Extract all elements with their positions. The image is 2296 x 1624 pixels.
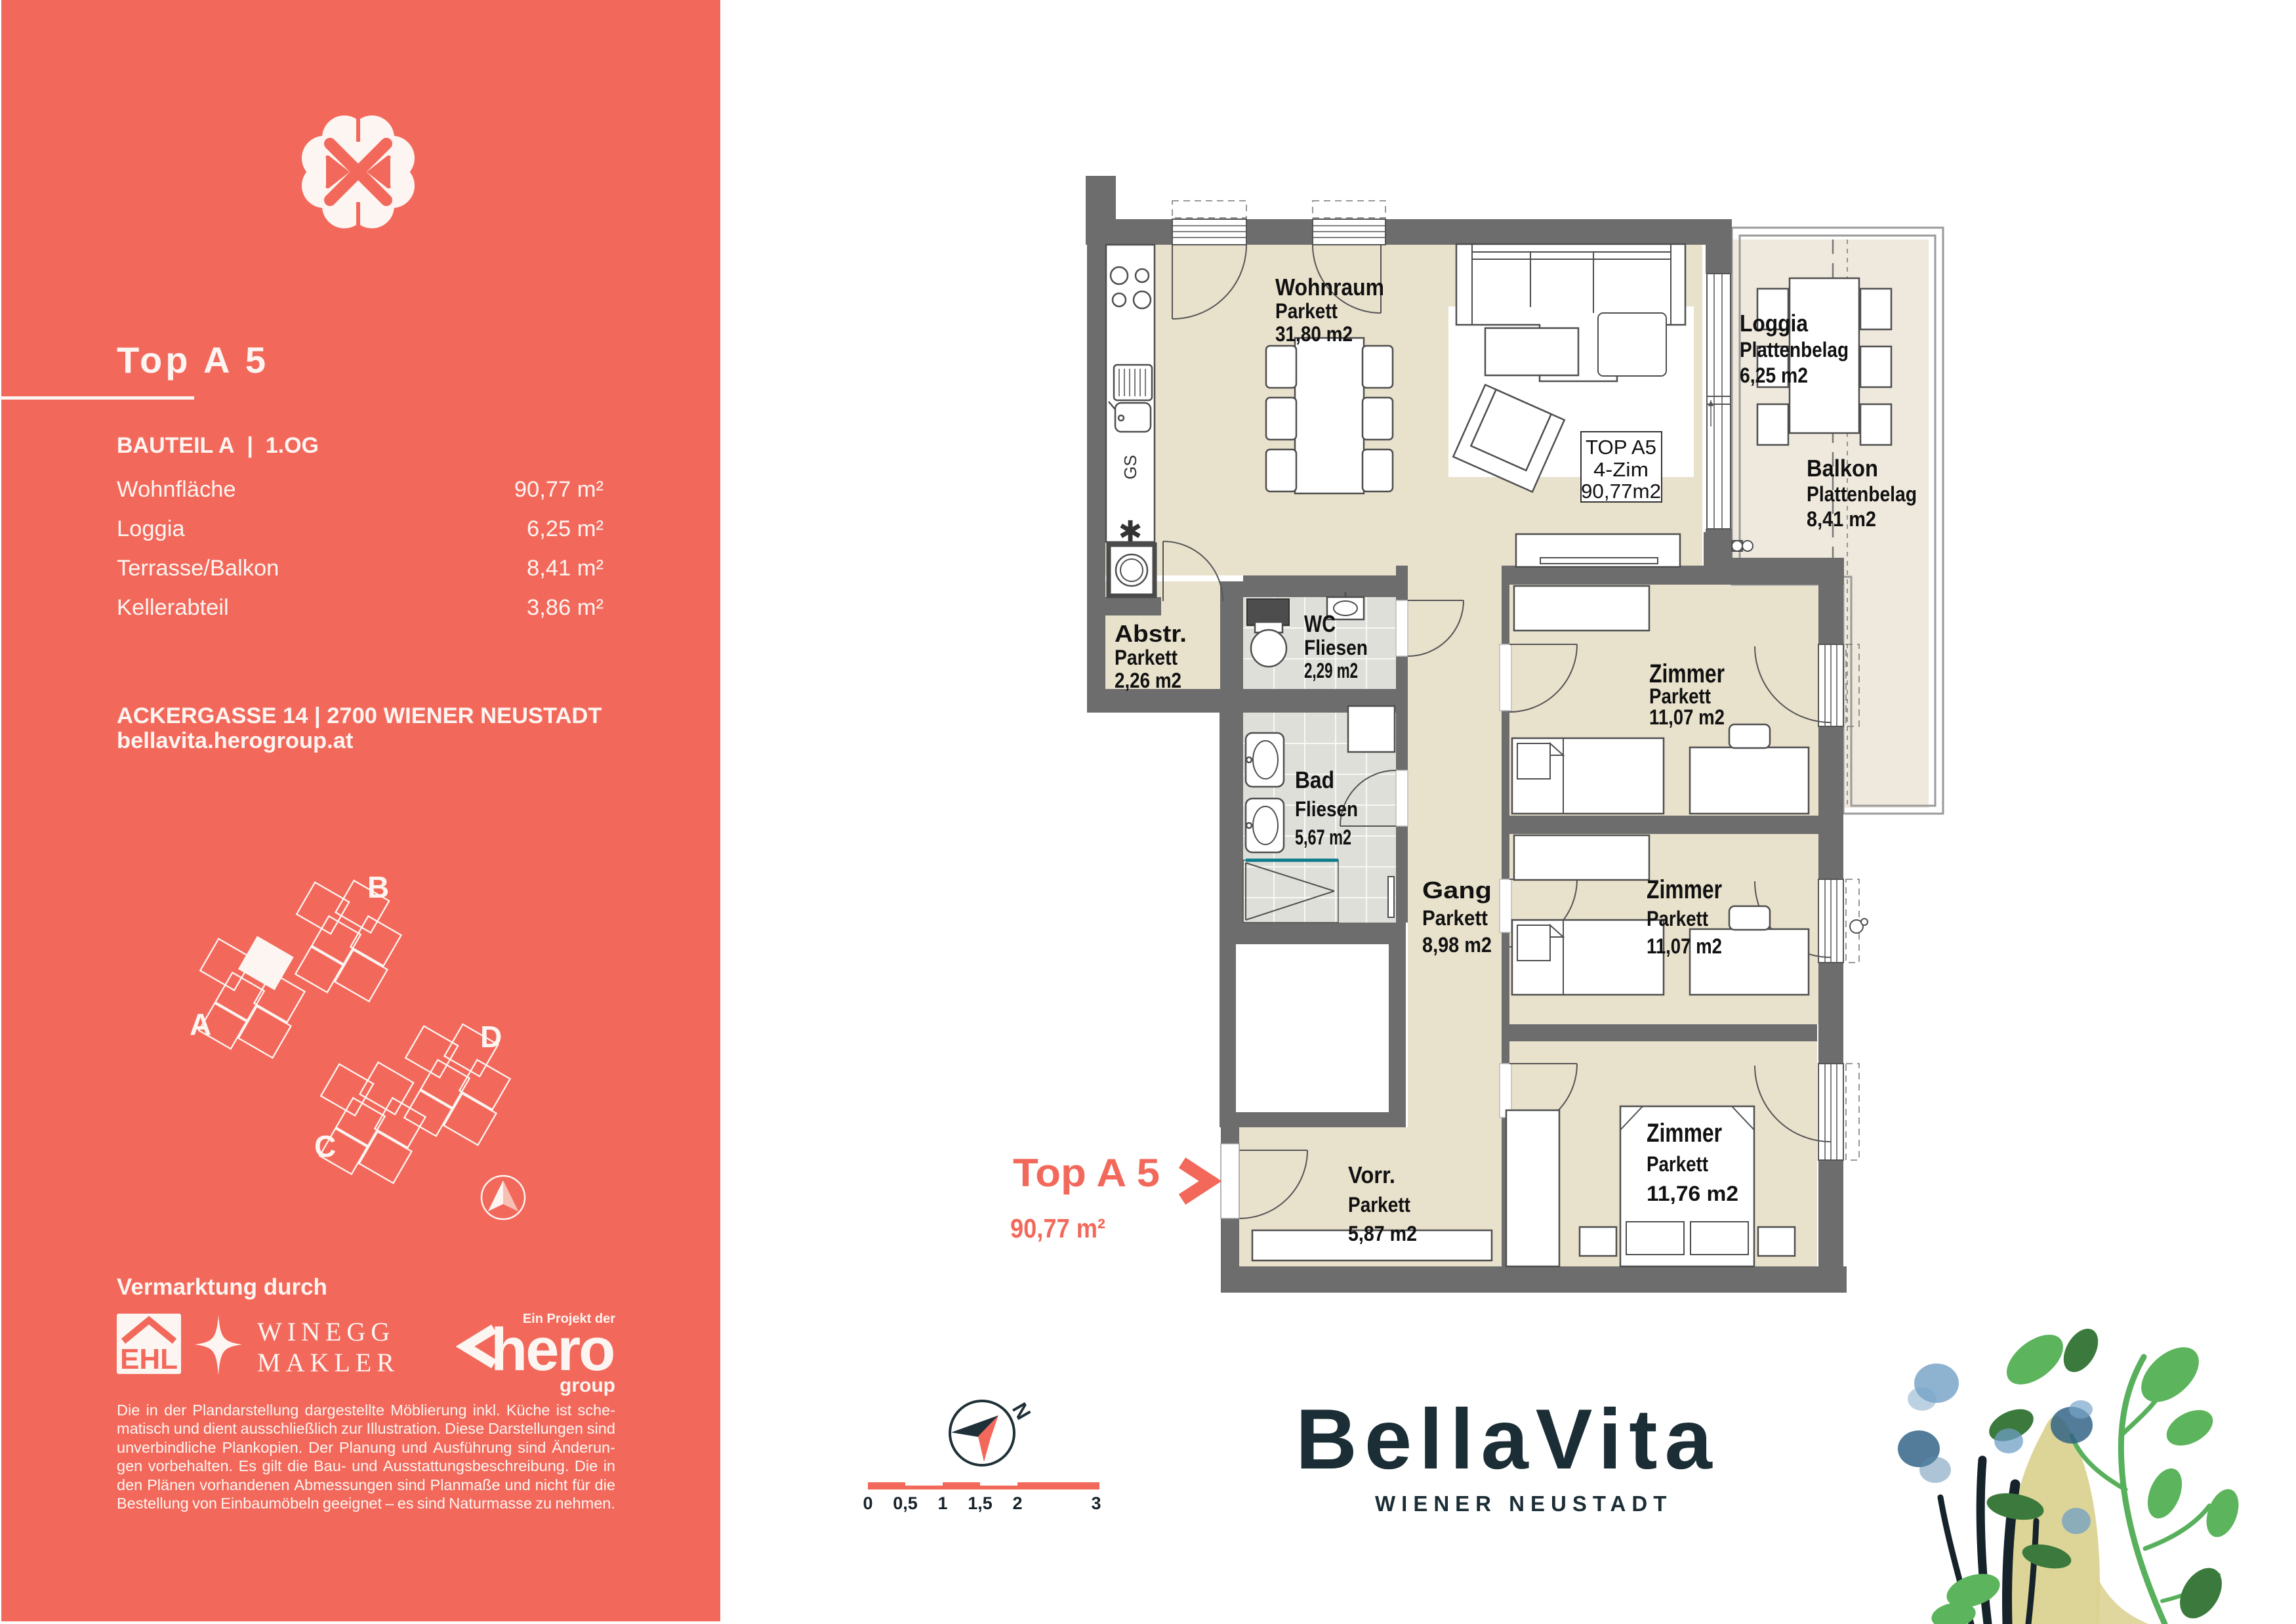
svg-text:11,07 m2: 11,07 m2 (1649, 705, 1725, 729)
svg-text:Loggia: Loggia (1740, 310, 1809, 337)
svg-text:group: group (560, 1375, 615, 1396)
svg-text:Plattenbelag: Plattenbelag (1807, 482, 1917, 506)
svg-text:0,5: 0,5 (893, 1493, 918, 1513)
svg-text:Parkett: Parkett (1647, 1152, 1708, 1176)
svg-text:hero: hero (491, 1316, 613, 1383)
svg-text:Parkett: Parkett (1348, 1193, 1410, 1217)
svg-text:3: 3 (1091, 1493, 1101, 1513)
svg-text:Fliesen: Fliesen (1304, 636, 1368, 659)
svg-text:8,41 m2: 8,41 m2 (1807, 507, 1876, 531)
svg-text:Balkon: Balkon (1807, 455, 1878, 482)
svg-text:WC: WC (1304, 610, 1336, 637)
svg-text:2,26 m2: 2,26 m2 (1115, 669, 1181, 692)
svg-text:Zimmer: Zimmer (1647, 1119, 1722, 1148)
svg-text:Parkett: Parkett (1115, 646, 1178, 669)
svg-text:1,5: 1,5 (968, 1493, 993, 1513)
svg-text:WINEGG: WINEGG (257, 1317, 395, 1346)
svg-text:WIENER NEUSTADT: WIENER NEUSTADT (1375, 1491, 1672, 1516)
svg-text:Fliesen: Fliesen (1295, 797, 1358, 821)
svg-text:EHL: EHL (120, 1343, 178, 1375)
svg-text:Wohnraum: Wohnraum (1275, 274, 1384, 301)
svg-text:Parkett: Parkett (1649, 684, 1711, 708)
svg-text:Bad: Bad (1295, 766, 1334, 793)
svg-text:5,67 m2: 5,67 m2 (1295, 825, 1351, 849)
svg-text:C: C (314, 1129, 336, 1163)
svg-text:A: A (190, 1007, 211, 1041)
svg-text:Parkett: Parkett (1422, 906, 1488, 930)
svg-text:11,07 m2: 11,07 m2 (1647, 934, 1722, 958)
svg-text:Abstr.: Abstr. (1115, 620, 1187, 647)
svg-text:TOP A5: TOP A5 (1586, 436, 1656, 459)
svg-text:90,77 m²: 90,77 m² (1010, 1213, 1105, 1243)
svg-text:2,29 m2: 2,29 m2 (1304, 659, 1358, 682)
svg-text:GS: GS (1120, 455, 1140, 480)
svg-text:Plattenbelag: Plattenbelag (1740, 338, 1849, 362)
svg-text:Parkett: Parkett (1275, 299, 1338, 323)
svg-text:Parkett: Parkett (1647, 907, 1708, 930)
svg-text:MAKLER: MAKLER (257, 1348, 400, 1377)
svg-text:5,87 m2: 5,87 m2 (1348, 1222, 1417, 1245)
svg-text:6,25 m2: 6,25 m2 (1740, 364, 1808, 387)
svg-text:Gang: Gang (1422, 877, 1492, 904)
svg-text:Zimmer: Zimmer (1647, 875, 1722, 904)
svg-text:0: 0 (863, 1493, 872, 1513)
svg-text:2: 2 (1012, 1493, 1022, 1513)
svg-text:Vorr.: Vorr. (1348, 1161, 1395, 1188)
svg-text:8,98 m2: 8,98 m2 (1422, 933, 1492, 957)
svg-text:4-Zim: 4-Zim (1593, 458, 1649, 481)
svg-text:B: B (367, 870, 389, 904)
svg-text:D: D (480, 1020, 502, 1054)
svg-text:1: 1 (937, 1493, 947, 1513)
svg-text:11,76 m2: 11,76 m2 (1647, 1182, 1738, 1205)
svg-text:Top A 5: Top A 5 (1013, 1151, 1160, 1195)
svg-text:BellaVita: BellaVita (1296, 1391, 1719, 1487)
svg-text:90,77m2: 90,77m2 (1581, 480, 1661, 503)
svg-text:31,80 m2: 31,80 m2 (1275, 322, 1353, 346)
